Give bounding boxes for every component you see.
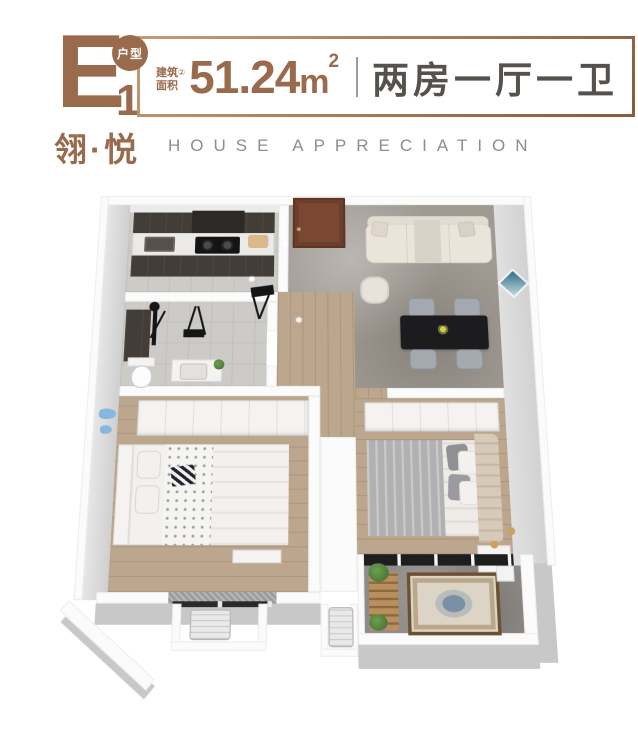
floorplan-render bbox=[67, 196, 565, 693]
bedroom2-pillow2-icon bbox=[134, 485, 160, 514]
range-hood-icon bbox=[191, 211, 244, 235]
drying-rack-base-icon bbox=[183, 329, 204, 337]
striped-pillow-icon bbox=[170, 464, 196, 487]
sofa-pillow-icon bbox=[371, 221, 389, 238]
table-flowers-icon bbox=[438, 325, 451, 335]
area-label-line1: 建筑 bbox=[156, 67, 178, 80]
ac-unit2-icon bbox=[328, 607, 353, 647]
kitchen-lower-cabinets bbox=[130, 256, 274, 277]
bed-end-bench-icon bbox=[232, 550, 281, 564]
balcony-plant-icon bbox=[368, 563, 388, 581]
washbasin-icon bbox=[179, 363, 207, 379]
entry-door-icon bbox=[293, 198, 346, 248]
rug-medallion bbox=[428, 585, 479, 622]
area-number: 51.24 bbox=[189, 51, 299, 103]
door-handle-icon bbox=[297, 227, 301, 231]
brand-name-cn: 翎·悦 bbox=[54, 123, 140, 171]
wall-bathroom-right-upper bbox=[267, 302, 278, 332]
bathroom-plant-icon bbox=[214, 359, 225, 369]
info-box: 建筑 面积 ② 51.24m2 两房一厅一卫 bbox=[137, 36, 635, 117]
light-dot2-icon bbox=[249, 277, 254, 282]
bathroom-tall-cabinet bbox=[123, 310, 151, 362]
master-door-threshold bbox=[355, 388, 387, 398]
area-label: 建筑 面积 bbox=[156, 67, 178, 92]
area-footnote-mark: ② bbox=[178, 68, 185, 77]
wall-kitchen-right bbox=[278, 205, 289, 292]
dining-chair4-icon bbox=[455, 349, 483, 369]
area-label-line2: 面积 bbox=[156, 80, 178, 93]
ac-bay2-parapet-bottom bbox=[321, 648, 359, 656]
layout-description: 两房一厅一卫 bbox=[358, 50, 632, 104]
area-unit: m bbox=[299, 63, 328, 101]
ac-bay2-parapet-left bbox=[321, 604, 329, 651]
balcony-outer-face bbox=[358, 645, 540, 669]
armchair-icon bbox=[360, 277, 389, 304]
dining-chair3-icon bbox=[409, 349, 437, 369]
cutting-board-icon bbox=[248, 235, 269, 248]
balcony-window-band bbox=[364, 554, 514, 565]
area-value: 51.24m2 bbox=[189, 50, 338, 104]
unit-type-badge: 户型 bbox=[112, 35, 148, 71]
ac-unit-icon bbox=[189, 609, 231, 640]
kitchen-sink-icon bbox=[144, 237, 175, 252]
light-dot-icon bbox=[282, 242, 287, 247]
wall-bathroom-bottom bbox=[119, 386, 320, 396]
master-wardrobe bbox=[364, 402, 500, 431]
bedroom2-white-duvet bbox=[210, 444, 289, 545]
balcony-rug bbox=[407, 572, 502, 635]
wall-master-top bbox=[387, 388, 504, 398]
unit-letter: E bbox=[56, 30, 123, 115]
sofa-throw-blanket bbox=[414, 220, 442, 263]
bedroom2-floral-duvet bbox=[162, 444, 214, 545]
ac-bay1-parapet-bottom bbox=[171, 641, 267, 651]
floor-lamp-icon bbox=[507, 527, 515, 535]
area-exponent: 2 bbox=[329, 51, 339, 72]
wall-bedroom2-right bbox=[308, 396, 320, 592]
window-frame bbox=[172, 601, 272, 607]
ac-bay1-parapet-left bbox=[171, 604, 182, 644]
ac-bay1-parapet-right bbox=[258, 604, 268, 644]
table-lamp-icon bbox=[490, 541, 498, 549]
brand-name-en: HOUSE APPRECIATION bbox=[168, 136, 538, 156]
stove-icon bbox=[195, 237, 240, 254]
master-gray-duvet bbox=[367, 440, 446, 536]
sofa-pillow2-icon bbox=[457, 221, 475, 237]
balcony-pedestal bbox=[496, 566, 515, 582]
light-dot3-icon bbox=[296, 317, 301, 322]
balcony-parapet-left bbox=[357, 554, 365, 645]
balcony-plant2-icon bbox=[369, 614, 387, 630]
floorplan-card: E 1 户型 建筑 面积 ② 51.24m2 两房一厅一卫 翎·悦 HOUSE … bbox=[0, 0, 638, 745]
bedroom2-pillow-icon bbox=[136, 451, 161, 479]
bedroom2-wardrobe bbox=[136, 400, 308, 436]
wall-center-block bbox=[320, 437, 357, 592]
